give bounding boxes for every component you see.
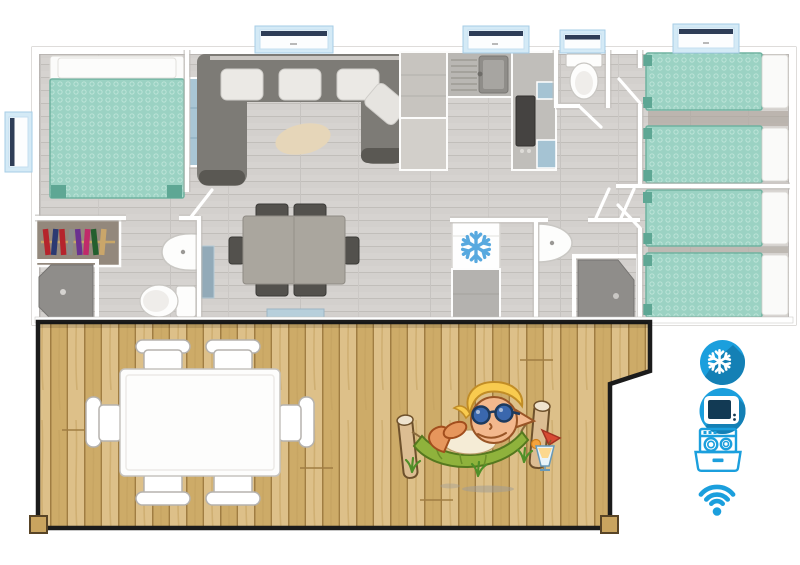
bed-pillow	[58, 58, 176, 78]
cushion	[221, 69, 263, 100]
bench	[201, 246, 214, 298]
bed-corner	[51, 185, 66, 198]
wifi-icon	[701, 487, 733, 516]
deck-chair	[206, 492, 260, 505]
terrace-deck	[30, 322, 650, 533]
bed-corner	[167, 185, 182, 198]
deck-post	[601, 516, 618, 533]
toilet	[140, 285, 196, 317]
amenities-column	[696, 340, 770, 516]
bed-pillow	[762, 128, 788, 181]
cushion	[279, 69, 321, 100]
shower-drain	[613, 293, 619, 299]
twin-bed	[643, 253, 788, 317]
floor-plan	[5, 24, 796, 325]
bed-pillow	[762, 255, 788, 315]
twin-bed	[643, 190, 788, 246]
dining-chair	[344, 237, 359, 264]
outdoor-table	[120, 369, 280, 476]
window	[255, 26, 333, 53]
bedroom-2	[643, 53, 788, 183]
window	[5, 112, 32, 172]
kitchen-cabinet	[400, 52, 447, 118]
sunglasses	[473, 407, 490, 424]
window	[673, 24, 739, 53]
bed-pillow	[762, 192, 788, 244]
bed-pillow	[762, 55, 788, 108]
deck-post	[30, 516, 47, 533]
tv-icon	[700, 388, 770, 455]
dining-chair	[229, 237, 244, 264]
twin-bed	[643, 53, 788, 110]
floorplan-canvas	[0, 0, 800, 565]
screenshot-root	[0, 0, 800, 565]
kitchen-cabinet	[400, 118, 447, 170]
dishwasher-icon	[696, 429, 741, 471]
cooktop	[516, 96, 535, 146]
window	[463, 26, 529, 53]
window	[560, 30, 605, 53]
deck-chair	[136, 492, 190, 505]
twin-bed	[643, 126, 788, 183]
fridge-freezer	[452, 222, 500, 320]
shower-drain	[60, 289, 66, 295]
faucet	[478, 72, 483, 77]
